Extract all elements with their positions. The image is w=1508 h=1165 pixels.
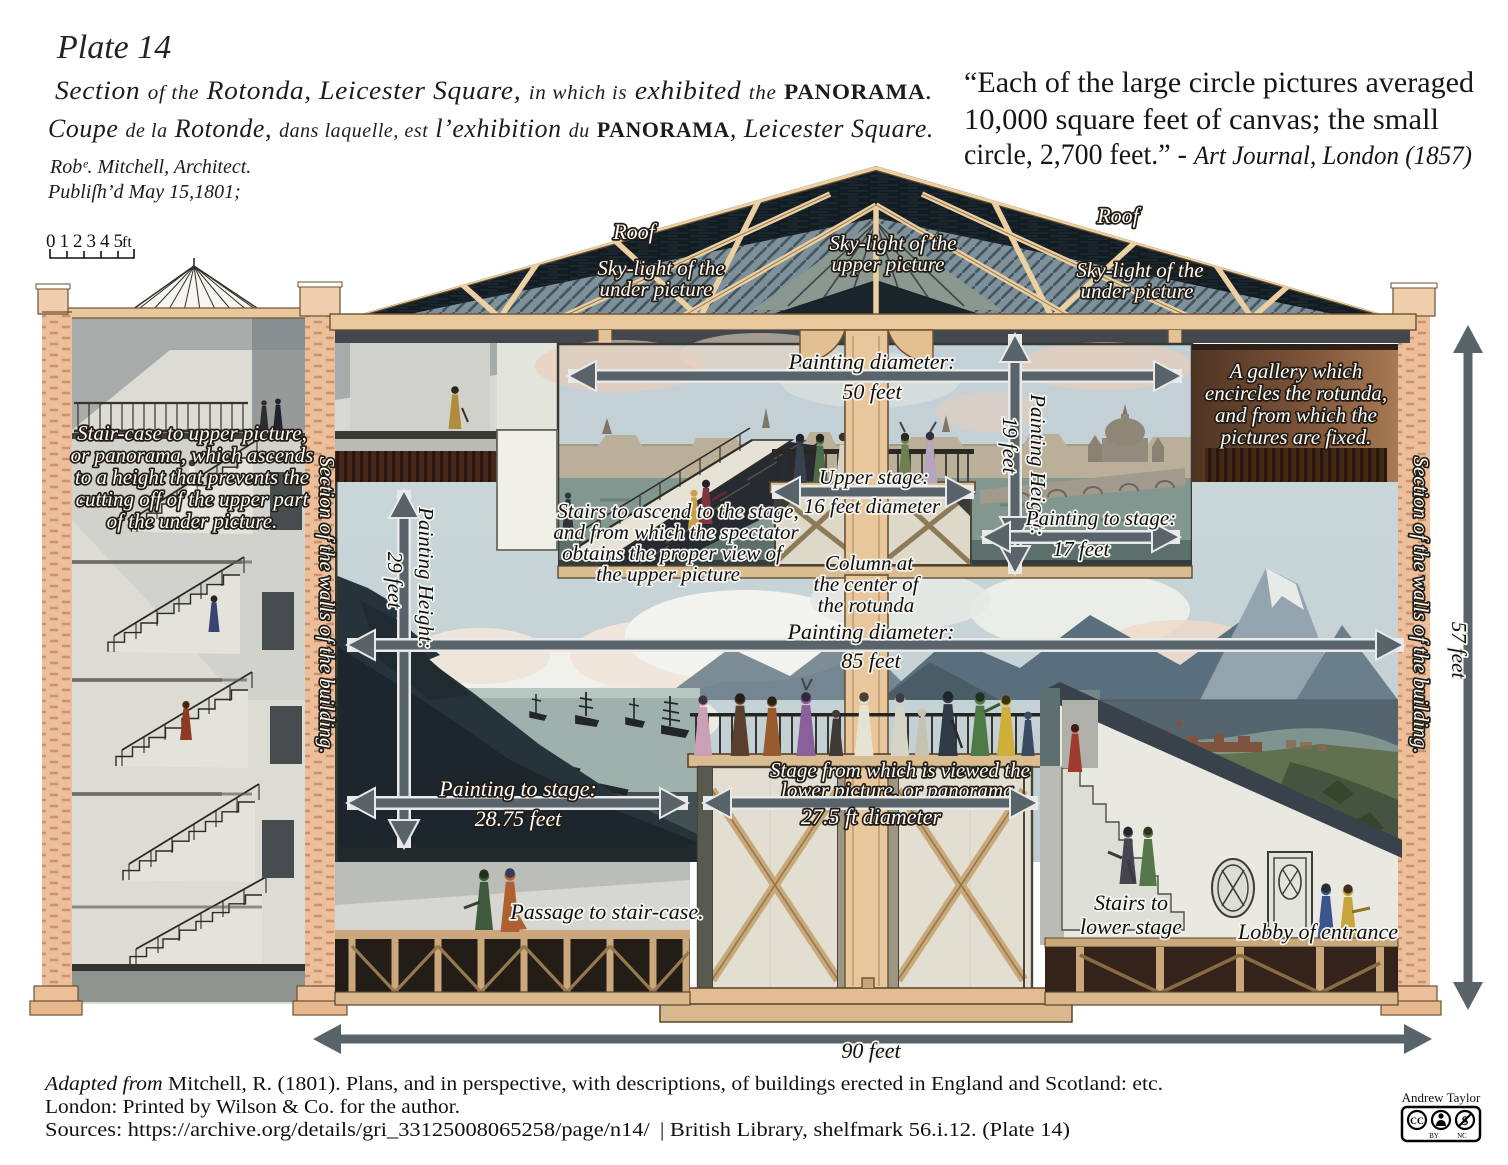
svg-text:Section of the walls of the bu: Section of the walls of the building. xyxy=(315,457,339,754)
svg-text:28.75 feet: 28.75 feet xyxy=(475,806,563,831)
svg-text:29 feet: 29 feet xyxy=(383,552,407,610)
svg-text:to a height that prevents the: to a height that prevents the xyxy=(75,465,309,489)
svg-text:Passage to stair-case.: Passage to stair-case. xyxy=(509,899,703,924)
svg-text:Painting Height:: Painting Height: xyxy=(414,506,438,649)
svg-text:under picture: under picture xyxy=(1081,279,1194,303)
svg-text:85 feet: 85 feet xyxy=(841,648,901,673)
svg-text:BY: BY xyxy=(1429,1132,1439,1140)
svg-text:Coupe de la Rotonde, dans laqu: Coupe de la Rotonde, dans laquelle, est … xyxy=(48,114,934,143)
svg-text:of the under picture.: of the under picture. xyxy=(107,509,278,533)
svg-text:circle, 2,700 feet.” - Art Jou: circle, 2,700 feet.” - Art Journal, Lond… xyxy=(964,139,1472,171)
svg-text:the rotunda: the rotunda xyxy=(818,593,915,617)
svg-text:Stairs to: Stairs to xyxy=(1094,890,1168,915)
svg-text:Stair-case to upper picture,: Stair-case to upper picture, xyxy=(77,421,307,445)
svg-text:16 feet diameter: 16 feet diameter xyxy=(804,494,941,518)
svg-text:90 feet: 90 feet xyxy=(841,1038,901,1063)
svg-text:Painting diameter:: Painting diameter: xyxy=(787,619,955,644)
svg-text:Roof: Roof xyxy=(1096,203,1141,228)
svg-text:Robᵉ. Mitchell, Architect.: Robᵉ. Mitchell, Architect. xyxy=(49,156,251,178)
svg-text:10,000 square feet of canvas;: 10,000 square feet of canvas; the small xyxy=(964,104,1439,136)
svg-text:Lobby of entrance: Lobby of entrance xyxy=(1237,919,1398,944)
svg-text:57 feet: 57 feet xyxy=(1447,622,1471,680)
svg-text:Publiſh’d May 15,1801;: Publiſh’d May 15,1801; xyxy=(47,181,241,203)
svg-text:ft: ft xyxy=(122,234,132,251)
svg-text:Roof: Roof xyxy=(612,219,657,244)
svg-text:or panorama, which ascends: or panorama, which ascends xyxy=(71,443,314,467)
svg-text:19 feet: 19 feet xyxy=(998,417,1022,475)
svg-text:CC: CC xyxy=(1410,1117,1424,1127)
svg-text:NC: NC xyxy=(1457,1132,1467,1140)
svg-text:London: Printed by Wilson & Co: London: Printed by Wilson & Co. for the … xyxy=(45,1096,460,1118)
svg-text:the upper picture: the upper picture xyxy=(596,562,740,586)
svg-text:pictures are fixed.: pictures are fixed. xyxy=(1219,425,1372,449)
svg-text:Andrew Taylor: Andrew Taylor xyxy=(1402,1090,1481,1105)
svg-text:Section of the walls of the bu: Section of the walls of the building. xyxy=(1409,457,1433,754)
svg-text:lower stage: lower stage xyxy=(1080,914,1182,939)
svg-text:under picture: under picture xyxy=(600,277,713,301)
svg-text:“Each of the large circle pict: “Each of the large circle pictures avera… xyxy=(964,67,1474,99)
svg-text:encircles the rotunda,: encircles the rotunda, xyxy=(1205,381,1387,405)
svg-text:Adapted from Mitchell, R. (180: Adapted from Mitchell, R. (1801). Plans,… xyxy=(43,1073,1163,1095)
svg-text:Painting diameter:: Painting diameter: xyxy=(788,349,956,374)
svg-text:cutting off of the upper part: cutting off of the upper part xyxy=(76,487,310,511)
svg-text:Plate 14: Plate 14 xyxy=(56,29,171,66)
svg-text:and from which the: and from which the xyxy=(1215,403,1377,427)
svg-text:17 feet: 17 feet xyxy=(1053,537,1111,561)
svg-text:Painting to stage:: Painting to stage: xyxy=(438,776,597,801)
svg-text:50 feet: 50 feet xyxy=(842,379,902,404)
svg-text:A gallery which: A gallery which xyxy=(1228,359,1363,383)
svg-text:upper picture: upper picture xyxy=(832,252,945,276)
svg-text:27.5 ft diameter: 27.5 ft diameter xyxy=(801,804,941,829)
svg-text:012345: 012345 xyxy=(46,231,127,252)
svg-text:Sources: https://archive.org/d: Sources: https://archive.org/details/gri… xyxy=(45,1119,1070,1141)
svg-text:Upper stage:: Upper stage: xyxy=(819,465,929,489)
svg-text:Painting to stage:: Painting to stage: xyxy=(1025,506,1177,530)
